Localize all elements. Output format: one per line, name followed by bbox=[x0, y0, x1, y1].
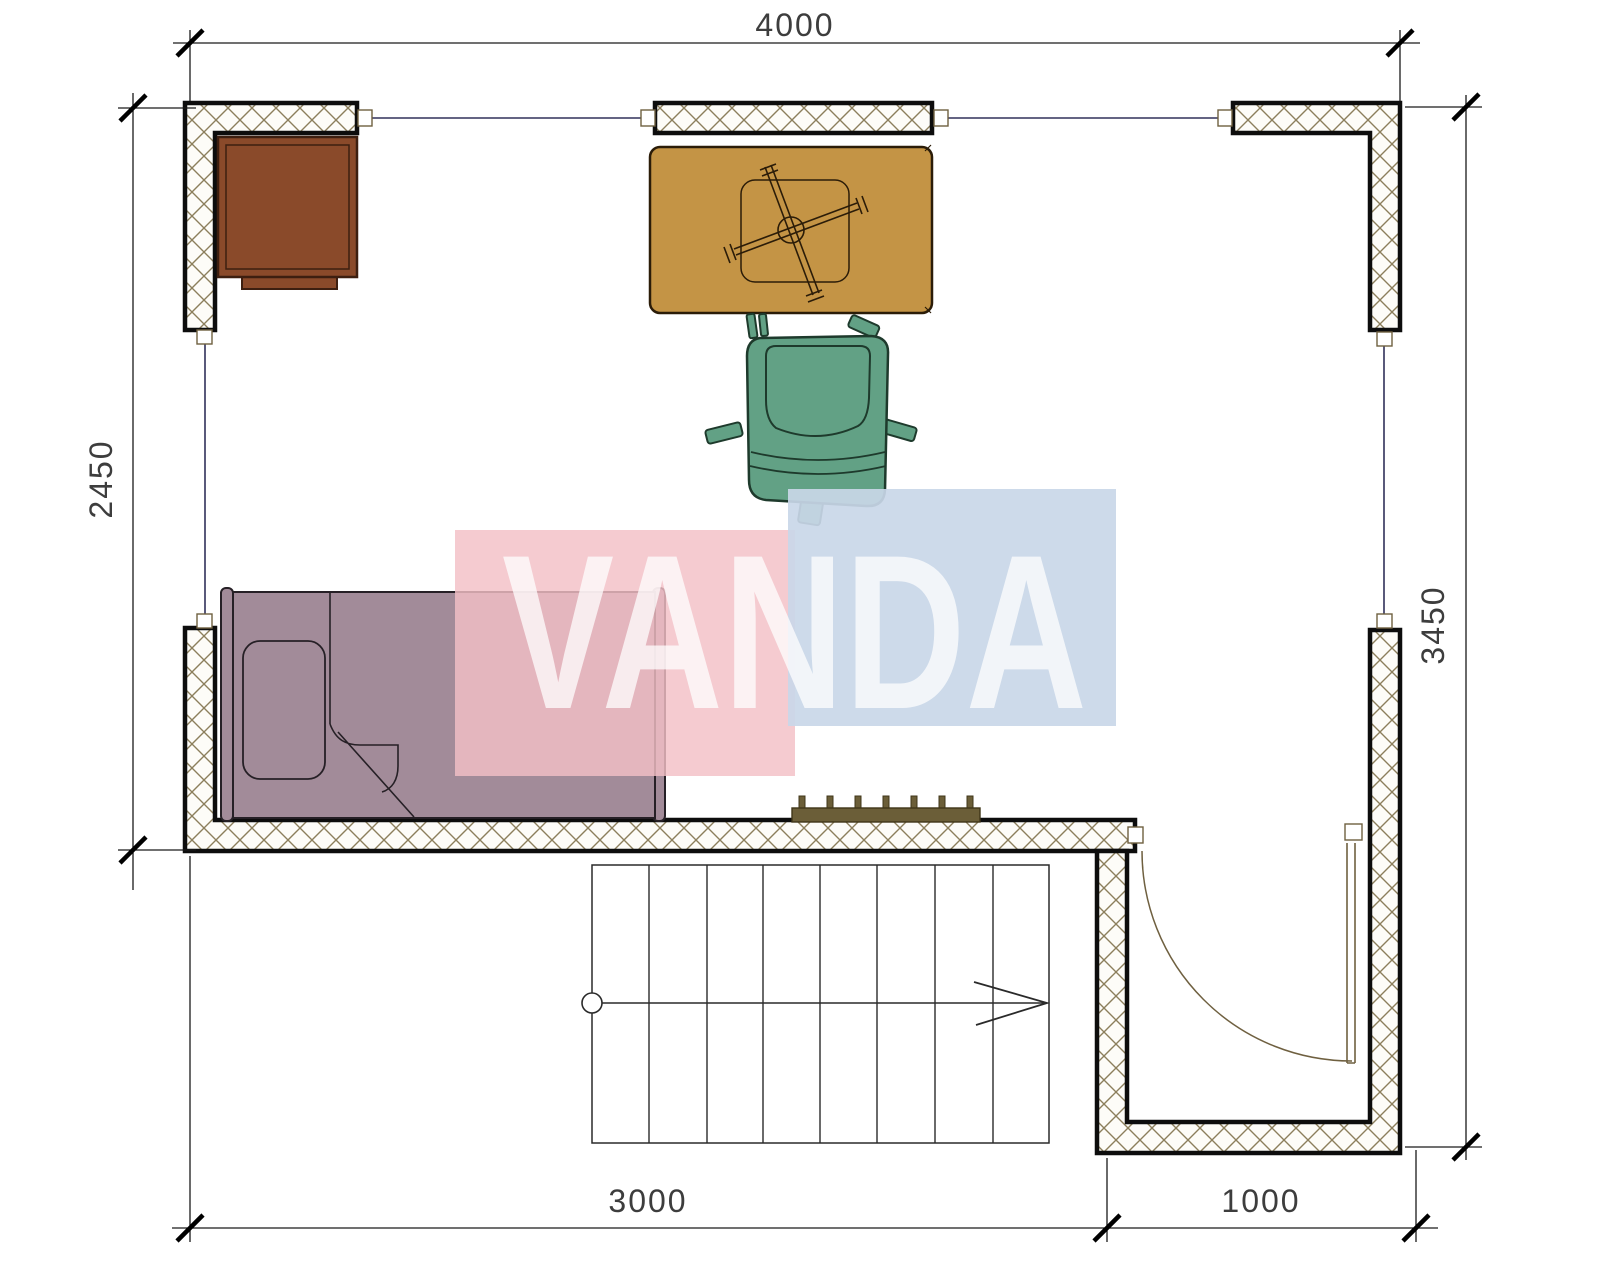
chair-body bbox=[747, 336, 888, 506]
watermark-text: VANDA bbox=[502, 509, 1087, 755]
wall-end-connector bbox=[641, 110, 655, 126]
wall-end-connector bbox=[358, 110, 372, 126]
dimension-label-left: 2450 bbox=[83, 439, 119, 518]
door-jamb-left bbox=[1128, 827, 1143, 843]
dimension-label-right: 3450 bbox=[1415, 585, 1451, 664]
wall-end-connector bbox=[934, 110, 948, 126]
wall-end-connector bbox=[1377, 614, 1392, 628]
floor-plan-svg: 4000 2450 3450 3000 1000 VANDA bbox=[0, 0, 1600, 1280]
desk-top bbox=[218, 137, 357, 277]
bed-headboard bbox=[221, 588, 233, 821]
dimension-label-bottom-left: 3000 bbox=[608, 1183, 687, 1219]
table-top bbox=[650, 147, 932, 313]
door-jamb-right bbox=[1345, 824, 1362, 840]
radiator-body bbox=[792, 808, 980, 822]
watermark: VANDA bbox=[455, 489, 1116, 776]
wall-end-connector bbox=[197, 330, 212, 344]
wall-end-connector bbox=[1377, 332, 1392, 346]
wall-end-connector bbox=[1218, 110, 1232, 126]
dimension-label-bottom-right: 1000 bbox=[1221, 1183, 1300, 1219]
desk bbox=[218, 137, 357, 289]
walkline-start-circle bbox=[582, 993, 602, 1013]
table bbox=[650, 145, 932, 313]
dimension-label-top: 4000 bbox=[755, 7, 834, 43]
stairs bbox=[582, 865, 1049, 1143]
wall-top-center bbox=[655, 103, 932, 133]
wall-end-connector bbox=[197, 614, 212, 628]
